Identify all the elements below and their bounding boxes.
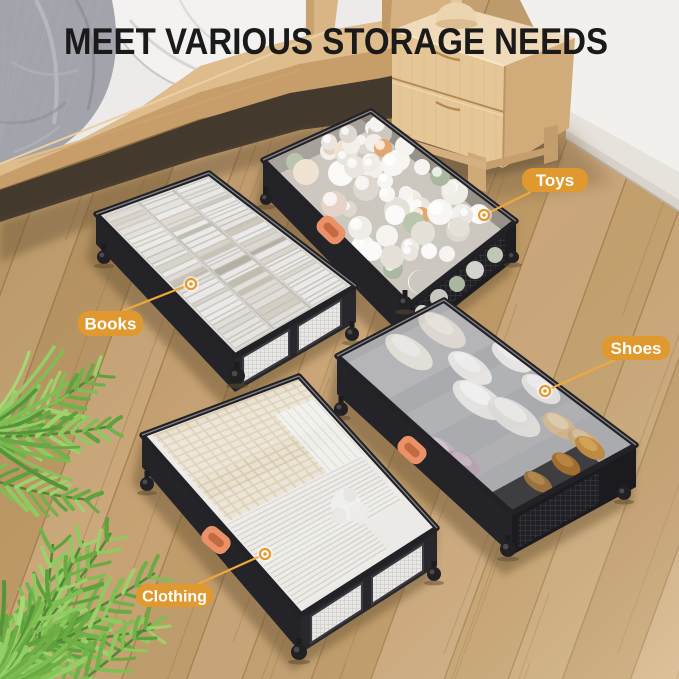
svg-text:MEET VARIOUS STORAGE NEEDS: MEET VARIOUS STORAGE NEEDS [64,21,608,62]
svg-text:Shoes: Shoes [610,339,661,358]
svg-text:Clothing: Clothing [142,589,207,606]
svg-text:Toys: Toys [536,171,574,190]
svg-text:Books: Books [85,315,137,334]
